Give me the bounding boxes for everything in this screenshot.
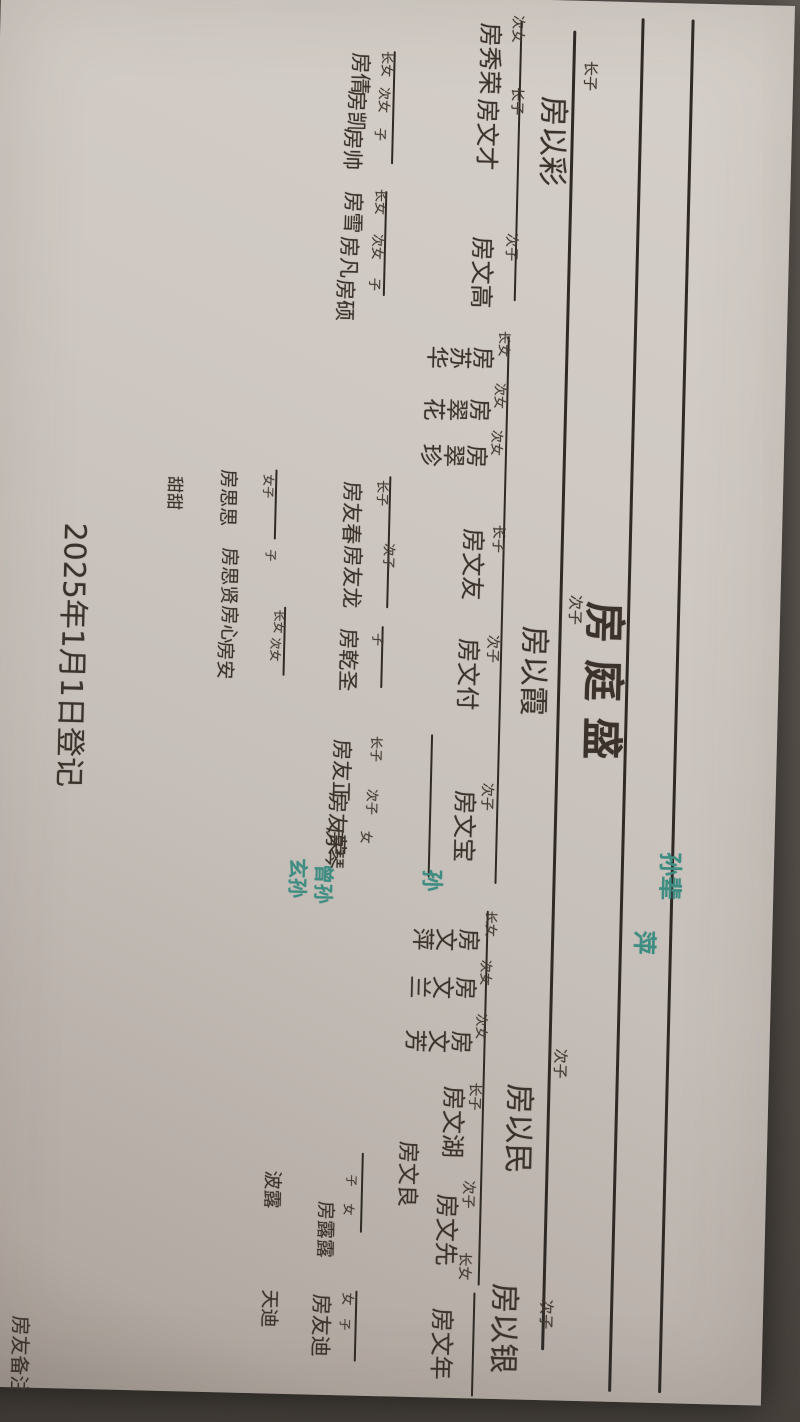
person-name: 房文年 bbox=[427, 1307, 454, 1380]
relation-label: 长女 bbox=[483, 911, 497, 937]
corner-note: 房友备注 bbox=[8, 1315, 31, 1395]
relation-label: 女 bbox=[342, 1203, 355, 1215]
relation-label: 次子 bbox=[381, 543, 395, 569]
person-name: 房文才 bbox=[473, 98, 500, 171]
person-name: 房文宝 bbox=[450, 790, 477, 863]
relation-label: 长子 bbox=[581, 61, 597, 91]
relation-label: 次女 bbox=[509, 15, 524, 43]
person-name: 房文兰 bbox=[409, 971, 479, 997]
rule-line bbox=[494, 336, 509, 884]
paper-sheet: 房庭盛 2025年1月1日登记 房友备注 孙辈萍孙曾孙玄孙长子房以彩次女房秀荣长… bbox=[0, 0, 795, 1406]
person-name: 房思贤 bbox=[217, 547, 238, 604]
relation-label: 长女 bbox=[379, 51, 393, 77]
person-name: 房琴 bbox=[322, 827, 345, 870]
photo-of-genealogy-document: 房庭盛 2025年1月1日登记 房友备注 孙辈萍孙曾孙玄孙长子房以彩次女房秀荣长… bbox=[0, 0, 800, 1422]
person-name: 房以民 bbox=[501, 1083, 534, 1174]
person-name: 甜甜 bbox=[164, 476, 182, 510]
person-name: 房友龙 bbox=[339, 545, 362, 609]
family-title: 房庭盛 bbox=[578, 601, 626, 776]
relation-label: 子 bbox=[338, 1318, 351, 1330]
relation-label: 次女 bbox=[488, 430, 502, 456]
teal-annotation: 孙辈 bbox=[656, 852, 682, 901]
person-name: 房露露 bbox=[314, 1201, 335, 1258]
person-name: 房帅 bbox=[340, 128, 363, 171]
person-name: 房文友 bbox=[458, 528, 485, 601]
relation-label: 次子 bbox=[503, 233, 518, 261]
relation-label: 次子 bbox=[551, 1048, 567, 1078]
relation-label: 子 bbox=[372, 128, 386, 141]
registration-date: 2025年1月1日登记 bbox=[53, 522, 91, 787]
family-tree: 孙辈萍孙曾孙玄孙长子房以彩次女房秀荣长子房文才长女房倩次女房凯子房帅次子房文高长… bbox=[761, 6, 795, 1406]
rule-line bbox=[471, 1293, 476, 1397]
relation-label: 子 bbox=[264, 549, 277, 561]
person-name: 房心 bbox=[218, 605, 239, 643]
relation-label: 长子 bbox=[490, 525, 505, 553]
relation-label: 次女 bbox=[477, 960, 491, 986]
relation-label: 子 bbox=[366, 278, 380, 291]
teal-annotation: 萍 bbox=[631, 930, 657, 955]
relation-label: 长女 bbox=[272, 609, 285, 633]
relation-label: 次女 bbox=[376, 87, 390, 113]
person-name: 房友迪 bbox=[308, 1294, 331, 1358]
relation-label: 长子 bbox=[374, 480, 388, 506]
person-name: 房思思 bbox=[216, 469, 237, 526]
person-name: 房秀荣 bbox=[476, 22, 503, 95]
teal-annotation: 孙 bbox=[418, 869, 441, 892]
relation-label: 次女 bbox=[369, 234, 383, 260]
relation-label: 次子 bbox=[479, 783, 494, 811]
rule-line bbox=[658, 19, 695, 1393]
relation-label: 长女 bbox=[372, 189, 386, 215]
relation-label: 次子 bbox=[364, 789, 378, 815]
relation-label: 长女 bbox=[456, 1252, 471, 1280]
person-name: 房友春 bbox=[339, 481, 362, 545]
person-name: 房凯 bbox=[344, 90, 367, 133]
relation-label: 子 bbox=[370, 633, 384, 646]
person-name: 房文良 bbox=[394, 1141, 418, 1208]
person-name: 房倩 bbox=[348, 52, 371, 95]
person-name: 房以彩 bbox=[535, 96, 568, 187]
person-name: 房凡 bbox=[336, 236, 359, 279]
person-name: 房文湖 bbox=[439, 1086, 466, 1159]
person-name: 房以霞 bbox=[516, 625, 549, 716]
person-name: 房以银 bbox=[486, 1283, 519, 1374]
person-name: 房雪 bbox=[340, 191, 363, 234]
teal-annotation: 曾孙 bbox=[312, 863, 334, 903]
teal-annotation: 玄孙 bbox=[286, 858, 308, 898]
person-name: 房文芳 bbox=[404, 1025, 474, 1051]
person-name: 波露 bbox=[261, 1170, 282, 1208]
person-name: 房文萍 bbox=[412, 923, 482, 949]
rule-line bbox=[428, 734, 433, 877]
relation-label: 子 bbox=[345, 1174, 358, 1186]
person-name: 房苏华 bbox=[426, 341, 496, 367]
person-name: 房文先 bbox=[432, 1194, 459, 1267]
relation-label: 女 bbox=[340, 1292, 354, 1305]
relation-label: 长子 bbox=[509, 87, 524, 115]
rule-line bbox=[354, 1291, 358, 1362]
relation-label: 女子 bbox=[261, 474, 274, 498]
rule-line bbox=[360, 1153, 364, 1233]
person-name: 房乾圣 bbox=[335, 628, 358, 692]
relation-label: 次女 bbox=[492, 383, 506, 409]
relation-label: 次女 bbox=[268, 637, 281, 661]
relation-label: 次子 bbox=[484, 635, 499, 663]
person-name: 房文高 bbox=[468, 236, 495, 309]
relation-label: 长女 bbox=[496, 331, 510, 357]
relation-label: 次子 bbox=[460, 1180, 475, 1208]
relation-label: 长子 bbox=[466, 1082, 481, 1110]
relation-label: 次子 bbox=[537, 1299, 553, 1329]
person-name: 房文付 bbox=[454, 638, 481, 711]
person-name: 房硕 bbox=[332, 279, 355, 322]
person-name: 房翠珍 bbox=[420, 439, 490, 465]
relation-label: 长子 bbox=[368, 736, 382, 762]
person-name: 天迪 bbox=[258, 1289, 279, 1327]
person-name: 房安 bbox=[214, 641, 235, 679]
relation-label: 女 bbox=[358, 831, 372, 844]
relation-label: 次女 bbox=[473, 1013, 487, 1039]
relation-label: 次子 bbox=[566, 595, 582, 625]
person-name: 房翠花 bbox=[423, 393, 493, 419]
